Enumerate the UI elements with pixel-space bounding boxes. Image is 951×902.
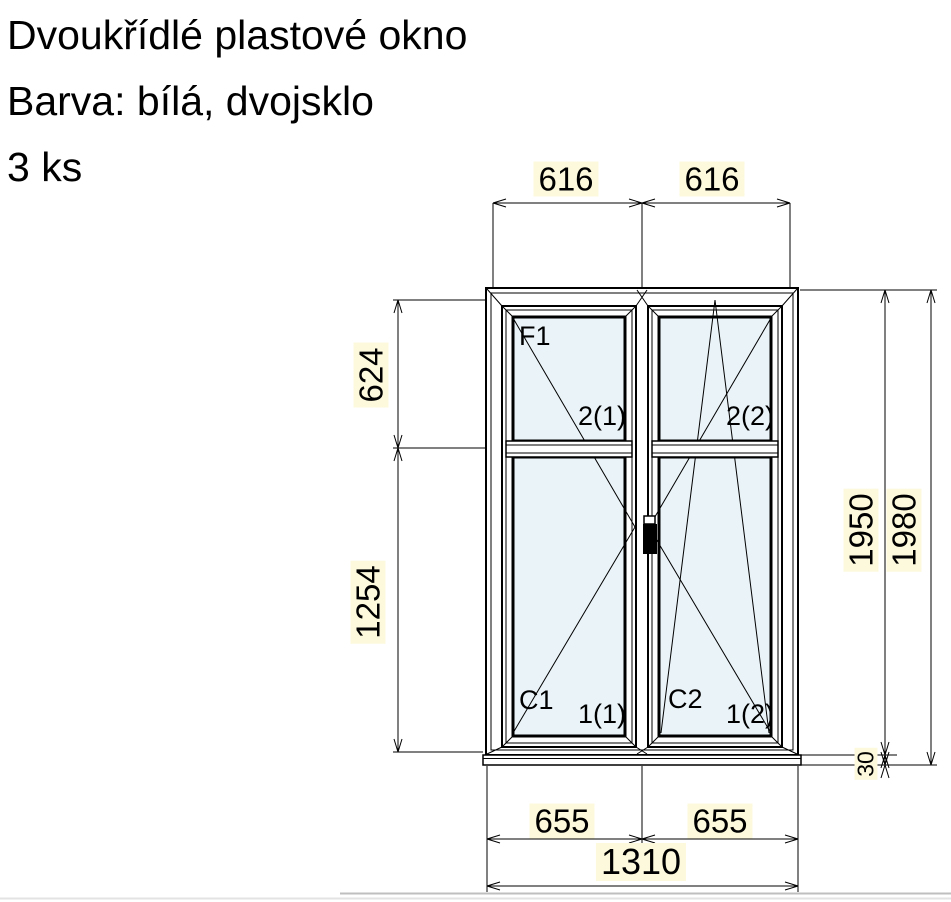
section-label-1-1: 1(1): [578, 701, 626, 728]
window-quote-page: Dvoukřídlé plastové okno Barva: bílá, dv…: [0, 0, 951, 902]
dim-label-half-width-left: 655: [529, 804, 594, 839]
dim-label-total-height: 1980: [887, 488, 922, 571]
dim-label-sill-height: 30: [855, 748, 878, 780]
transom-right-sash: [652, 441, 778, 457]
section-label-c1: C1: [519, 687, 554, 714]
section-label-f1: F1: [519, 323, 551, 350]
transom-left-sash: [506, 441, 632, 457]
page-edge-lines: [0, 894, 951, 899]
dim-label-half-width-right: 655: [687, 804, 752, 839]
handle-base: [644, 516, 655, 524]
handle-grip: [643, 524, 657, 554]
quantity-label: 3 ks: [7, 134, 467, 200]
dim-left-624-1254: [393, 300, 486, 752]
dim-top-616: [493, 199, 790, 288]
sill: [483, 755, 801, 765]
title-block: Dvoukřídlé plastové okno Barva: bílá, dv…: [7, 2, 467, 200]
dim-label-sash-width-left: 616: [533, 162, 598, 197]
section-label-1-2: 1(2): [726, 701, 774, 728]
section-label-2-2: 2(2): [726, 403, 774, 430]
page-subtitle: Barva: bílá, dvojsklo: [7, 68, 467, 134]
glass-panes: [513, 317, 771, 736]
dim-label-upper-pane-height: 624: [354, 342, 389, 407]
dim-label-sash-width-right: 616: [679, 162, 744, 197]
dim-label-total-width: 1310: [596, 843, 686, 881]
transom-bars: [506, 441, 778, 457]
section-label-2-1: 2(1): [578, 403, 626, 430]
section-label-c2: C2: [668, 686, 703, 713]
dim-label-frame-height: 1950: [844, 488, 879, 571]
window-handle: [643, 516, 657, 554]
dim-label-lower-pane-height: 1254: [351, 560, 386, 643]
page-title: Dvoukřídlé plastové okno: [7, 2, 467, 68]
